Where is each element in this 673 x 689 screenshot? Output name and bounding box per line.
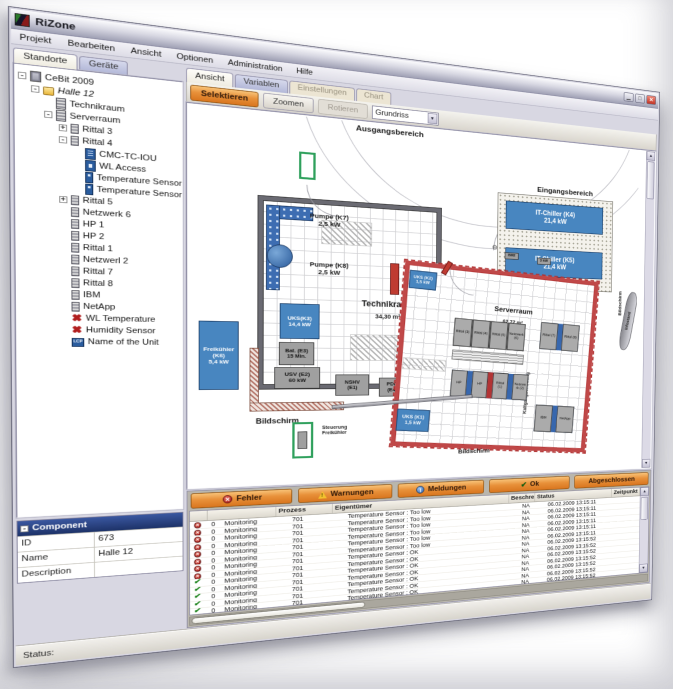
right-panel: Ansicht Variablen Einstellungen Chart Se… [186, 65, 657, 628]
steuerung-box [298, 431, 308, 449]
column-header[interactable] [190, 511, 208, 522]
server-rack[interactable]: Netzwerk (6) [507, 323, 526, 351]
tree-item-icon [71, 123, 79, 133]
floor-hatch-tiles [402, 357, 446, 371]
server-rack[interactable]: Rittal (8) [561, 324, 580, 352]
filter-icon [417, 486, 425, 494]
tree-item-label: HP 1 [83, 220, 104, 230]
screenshot-card: RiZone ▁ □ ✕ Schließen Projekt Bearbeite… [0, 0, 673, 689]
tree-item-label: Rittal 1 [83, 243, 113, 253]
filter-label: Abgeschlossen [588, 476, 634, 485]
status-label: Status: [23, 648, 54, 660]
tree-item-label: Name of the Unit [88, 337, 159, 346]
close-button[interactable]: ✕ [646, 95, 656, 105]
tree-item-label: WL Temperature [86, 314, 156, 324]
tree-item-icon [85, 160, 96, 172]
view-select-value: Grundriss [375, 108, 408, 120]
scroll-thumb[interactable] [641, 497, 649, 520]
row-status-icon [194, 529, 201, 536]
pumpe-k8-label[interactable]: Pumpe (K8)2,5 kW [297, 261, 360, 278]
nshv-e1-box[interactable]: NSHV(E1) [335, 374, 369, 395]
app-logo-icon [15, 13, 30, 27]
room-serverraum[interactable]: UKS (K2)1,5 kW Serverraum62,72 m² Rittal… [389, 259, 600, 454]
property-grid-title: Component [32, 521, 87, 533]
filter-icon [223, 495, 232, 504]
filter-label: Fehler [236, 493, 262, 502]
tree-item-icon [71, 242, 79, 252]
tree-item-icon [72, 325, 83, 335]
chevron-down-icon[interactable]: ▼ [427, 113, 437, 124]
filter-icon [318, 491, 327, 499]
bildschirm-label-left: Bildschirm [256, 416, 324, 426]
tree-expander-icon[interactable]: - [18, 71, 26, 79]
table-vertical-scrollbar[interactable]: ▲ ▼ [639, 487, 649, 573]
server-rack[interactable]: NetApp [555, 406, 574, 433]
canvas-vertical-scrollbar[interactable]: ▲ ▼ [641, 151, 655, 468]
tree-item-icon [71, 207, 79, 217]
server-rack[interactable]: HP [450, 370, 468, 397]
freikuehler-k6-box[interactable]: Freikühler(K6)5,4 kW [199, 321, 239, 390]
bat-e3-box[interactable]: Bat. (E3)15 Min. [279, 342, 314, 365]
rack-row-top: Rittal (3)Rittal (4)Rittal (5)Netzwerk (… [453, 318, 526, 351]
tree-item-icon [71, 195, 79, 205]
wall-segment [250, 402, 344, 412]
row-status-icon [194, 609, 201, 615]
tree-expander-icon[interactable]: - [44, 110, 52, 118]
tree-item-label: Netzwerl 2 [83, 255, 128, 266]
tree-item-label: Rittal 8 [83, 279, 113, 289]
tree-item-icon [85, 171, 93, 183]
tree-expander-icon[interactable]: + [59, 124, 67, 131]
row-status-icon [194, 544, 201, 551]
rack-row-right-2: IBMNetApp [534, 405, 575, 433]
tree-item-icon [71, 290, 79, 300]
scroll-down-icon[interactable]: ▼ [639, 564, 647, 573]
tree-item-icon [72, 313, 83, 324]
tree-item-icon [72, 338, 84, 347]
tree-item-icon [30, 71, 41, 83]
window-title: RiZone [35, 16, 75, 32]
filter-label: Warnungen [331, 488, 374, 498]
scroll-up-icon[interactable]: ▲ [647, 151, 656, 161]
location-tree: - CeBit 2009 - Halle 12 [13, 63, 183, 518]
filter-icon [521, 480, 527, 489]
minimize-button[interactable]: ▁ [624, 92, 634, 102]
toolbar-button[interactable]: Zoomen [263, 92, 314, 113]
collapse-icon[interactable]: - [20, 525, 28, 532]
kw3-box: 3 kW [537, 258, 551, 265]
property-rows: ID 673 Name Halle 12 Description [18, 527, 183, 583]
tree-expander-icon[interactable]: - [31, 85, 39, 93]
tree-item-icon [71, 219, 79, 229]
row-status-icon [194, 551, 201, 558]
server-rack[interactable]: Rittal (3) [453, 318, 473, 347]
usv-e2-box[interactable]: USV (E2)60 kW [274, 367, 320, 389]
tree-item[interactable]: Humidity Sensor [60, 324, 181, 337]
tree-item-label: IBM [83, 290, 100, 299]
scroll-down-icon[interactable]: ▼ [642, 459, 650, 468]
tree-item-icon [71, 266, 79, 276]
row-status-icon [194, 566, 201, 573]
floorplan-canvas[interactable]: Ausgangsbereich Eingangsbereich Bildschi… [186, 102, 656, 489]
left-panel: Standorte Geräte - CeBit 2009 [13, 44, 184, 644]
tree-item-label: Humidity Sensor [86, 326, 156, 336]
tree-expander-icon[interactable]: - [59, 136, 67, 143]
filter-label: Ok [530, 480, 539, 488]
tree-item-icon [71, 135, 79, 145]
pump-k8-symbol[interactable] [267, 244, 293, 268]
tree-item-icon [85, 183, 93, 195]
tree-item-label: Rittal 4 [82, 137, 112, 148]
scroll-up-icon[interactable]: ▲ [640, 487, 648, 496]
app-window: RiZone ▁ □ ✕ Schließen Projekt Bearbeite… [8, 6, 660, 668]
tree-item[interactable]: Name of the Unit [60, 336, 181, 349]
tree-item-icon [71, 254, 79, 264]
uks-k1-box[interactable]: UKS (K1)1,5 kW [396, 409, 430, 432]
steuerung-freikuehler-label: SteuerungFreikühler [322, 425, 362, 437]
bildschirm-label-bottom: Bildschirm [445, 448, 503, 457]
server-rack[interactable]: IBM [534, 405, 553, 432]
tree-item-label: Rittal 7 [83, 267, 113, 277]
screen-marker[interactable] [299, 151, 316, 180]
server-rack[interactable]: Rittal (1) [491, 372, 508, 399]
tree-item-label: Rittal 5 [83, 196, 113, 207]
vented-tiles [452, 349, 524, 364]
server-rack[interactable]: Netzwerk (2) [511, 374, 528, 401]
valve-symbol: ⊖ [492, 244, 497, 251]
uks-k2-box[interactable]: UKS (K2)1,5 kW [409, 270, 438, 291]
tree-item-icon [56, 109, 66, 121]
row-status-icon [194, 537, 201, 544]
tree-item-icon [56, 97, 66, 109]
wall-segment [250, 348, 259, 411]
server-rack[interactable]: Rittal (5) [489, 321, 508, 350]
bm2-box: BM2 [505, 252, 519, 260]
server-rack[interactable]: Rittal (7) [539, 322, 558, 350]
door-marker-red [390, 263, 399, 295]
filter-label: Meldungen [428, 484, 466, 493]
row-status-icon [194, 558, 201, 565]
tree-item-label: NetApp [83, 302, 115, 312]
tree-expander-icon[interactable]: + [59, 196, 67, 203]
bildschirm-label-right: Bildschirm [617, 271, 623, 316]
tree-item-icon [43, 86, 54, 95]
scroll-thumb[interactable] [647, 161, 655, 199]
maximize-button[interactable]: □ [635, 94, 645, 104]
row-status-icon [194, 522, 201, 529]
uks-k3-box[interactable]: UKS(K3)14,4 kW [280, 303, 320, 339]
rack-row-right-1: Rittal (7)Rittal (8) [539, 322, 580, 352]
tree-item-label: HP 2 [83, 231, 104, 241]
component-property-grid: - Component ID 673 Name [17, 512, 184, 584]
tree-item-icon [72, 302, 80, 312]
tree-item-icon [71, 231, 79, 241]
door-arc [448, 268, 476, 296]
tree-item-icon [85, 148, 96, 160]
tree-item-icon [71, 278, 79, 288]
server-rack[interactable]: Rittal (4) [471, 320, 491, 349]
floorplan: Ausgangsbereich Eingangsbereich Bildschi… [189, 104, 639, 487]
